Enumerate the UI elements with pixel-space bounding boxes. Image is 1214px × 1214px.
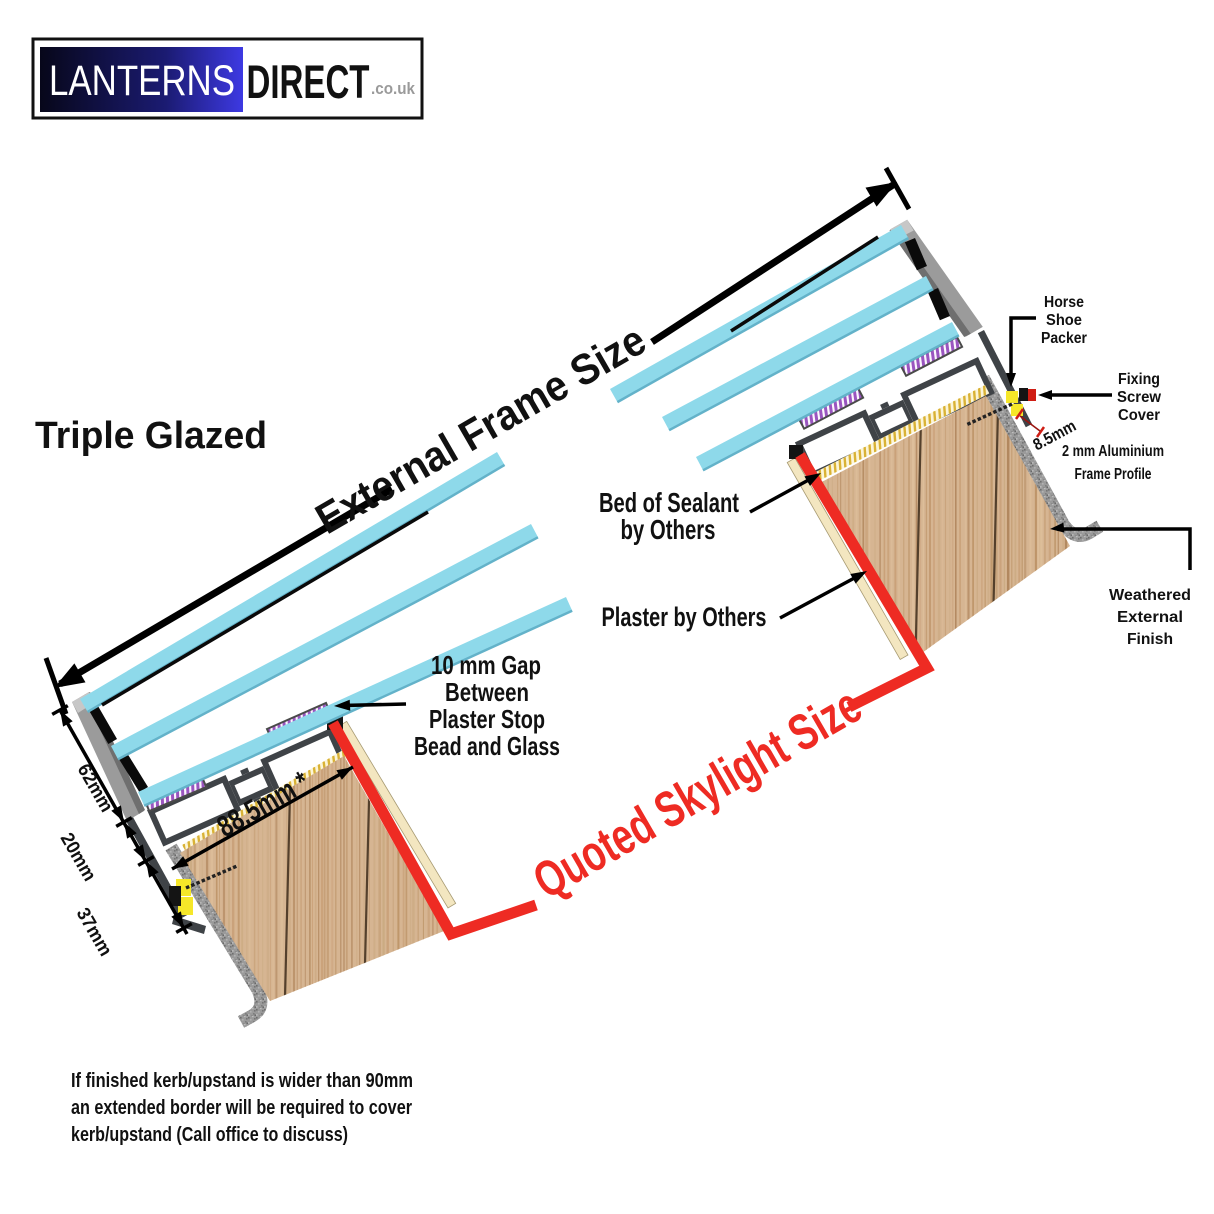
svg-text:Triple Glazed: Triple Glazed xyxy=(35,415,267,457)
svg-text:10 mm Gap: 10 mm Gap xyxy=(431,650,541,680)
svg-text:.co.uk: .co.uk xyxy=(371,79,415,98)
svg-text:Between: Between xyxy=(445,677,529,707)
svg-text:Finish: Finish xyxy=(1127,631,1173,648)
svg-text:DIRECT: DIRECT xyxy=(247,55,370,108)
svg-text:Plaster by Others: Plaster by Others xyxy=(602,602,767,632)
svg-text:2 mm Aluminium: 2 mm Aluminium xyxy=(1062,443,1164,460)
svg-text:If finished kerb/upstand is wi: If finished kerb/upstand is wider than 9… xyxy=(71,1070,413,1092)
svg-text:Fixing: Fixing xyxy=(1118,371,1160,388)
svg-text:Horse: Horse xyxy=(1044,294,1084,311)
svg-text:kerb/upstand (Call office to d: kerb/upstand (Call office to discuss) xyxy=(71,1124,348,1146)
svg-text:Bead and Glass: Bead and Glass xyxy=(414,731,560,761)
svg-text:Weathered: Weathered xyxy=(1109,587,1191,604)
svg-text:by Others: by Others xyxy=(621,514,716,545)
svg-text:Plaster Stop: Plaster Stop xyxy=(429,704,545,734)
svg-text:an extended border will be req: an extended border will be required to c… xyxy=(71,1097,412,1119)
svg-text:Cover: Cover xyxy=(1118,407,1160,424)
svg-text:External: External xyxy=(1117,609,1183,626)
svg-text:Frame Profile: Frame Profile xyxy=(1075,466,1152,483)
svg-text:Shoe: Shoe xyxy=(1046,312,1082,329)
svg-text:LANTERNS: LANTERNS xyxy=(49,57,235,105)
svg-text:Packer: Packer xyxy=(1041,330,1087,347)
svg-text:Screw: Screw xyxy=(1117,389,1162,406)
